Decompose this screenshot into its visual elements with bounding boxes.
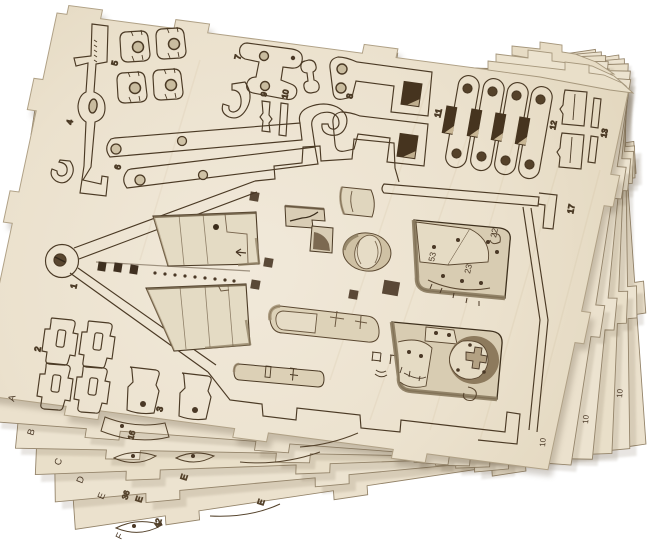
svg-text:17: 17 bbox=[565, 203, 577, 214]
svg-text:10: 10 bbox=[581, 414, 591, 424]
svg-text:10: 10 bbox=[615, 388, 625, 398]
svg-text:10: 10 bbox=[538, 437, 548, 447]
